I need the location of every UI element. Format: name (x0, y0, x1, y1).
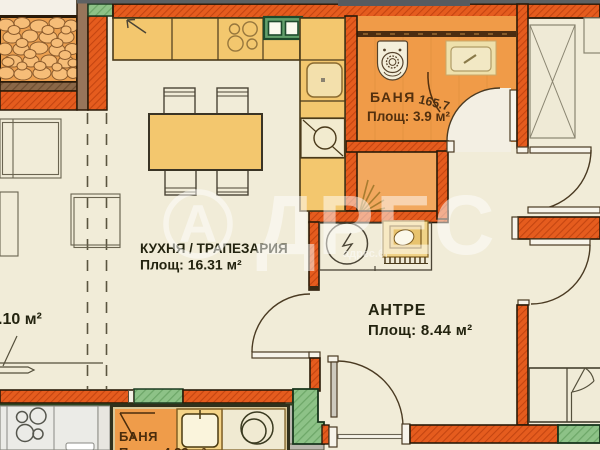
svg-text:БАНЯ: БАНЯ (119, 429, 158, 444)
svg-text:А: А (179, 195, 217, 254)
svg-text:адрес.бг: адрес.бг (343, 248, 390, 260)
svg-text:АНТРЕ: АНТРЕ (368, 302, 426, 319)
svg-text:Площ: 3.9 м²: Площ: 3.9 м² (367, 109, 450, 124)
svg-text:Площ: 16.31 м²: Площ: 16.31 м² (140, 257, 242, 273)
svg-text:БАНЯ: БАНЯ (370, 89, 416, 105)
svg-text:.10 м²: .10 м² (0, 311, 42, 328)
svg-text:Площ: 8.44 м²: Площ: 8.44 м² (368, 322, 472, 339)
svg-text:Площ: 4.23 м²: Площ: 4.23 м² (119, 445, 207, 450)
